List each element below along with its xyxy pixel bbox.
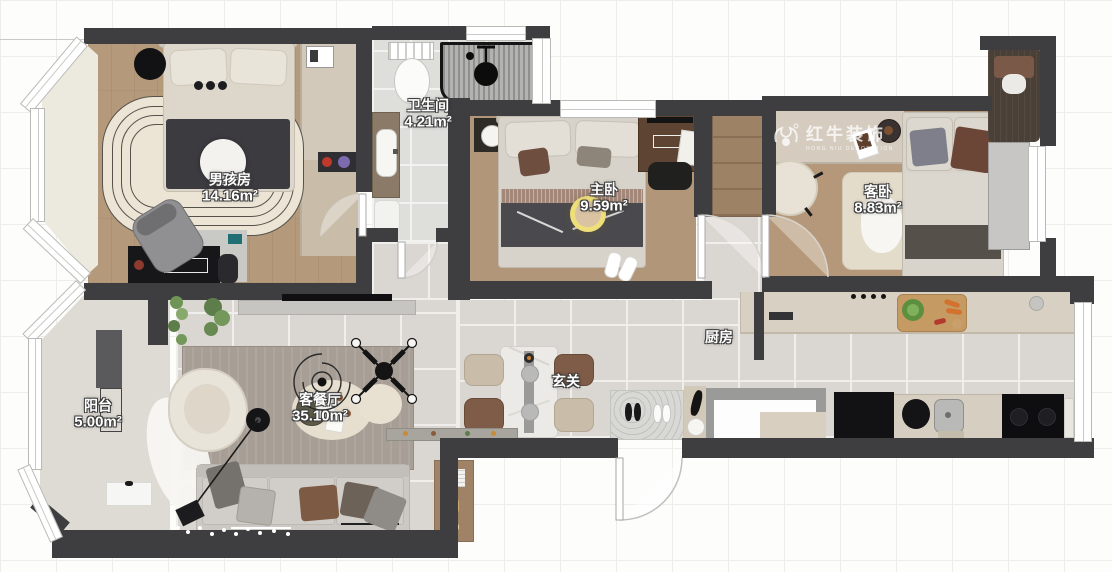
- bathroom-window: [532, 38, 551, 104]
- room-label-entry: 玄关: [552, 373, 580, 389]
- pot: [902, 399, 930, 429]
- entry-door-arc: [620, 458, 682, 520]
- room-label-kitchen: 厨房: [705, 329, 733, 345]
- black-shoes: [634, 403, 641, 421]
- balcony-cabinet: [96, 330, 122, 388]
- room-label-balcony: 阳台 5.00m²: [74, 397, 122, 430]
- room-label-living: 客餐厅 35.10m²: [292, 391, 348, 424]
- desk-chair: [648, 162, 692, 190]
- wall-segment: [694, 115, 712, 217]
- room-label-boy: 男孩房 14.16m²: [202, 171, 258, 204]
- plant: [202, 296, 234, 340]
- desk-figure: [218, 254, 238, 284]
- wall-segment: [1040, 36, 1056, 146]
- balcony-rack-top: [100, 306, 120, 330]
- burner: [1038, 408, 1056, 426]
- stove: [1002, 394, 1064, 438]
- toy-figures: [318, 152, 356, 172]
- cushion-brown: [517, 147, 550, 177]
- dining-chair-beige: [464, 354, 504, 386]
- wall-segment: [356, 28, 372, 192]
- sofa-pillow-brown: [299, 484, 340, 521]
- sofa-pillow-gray: [236, 486, 277, 527]
- pillow-bluegray: [909, 127, 949, 167]
- shower: [440, 42, 538, 103]
- brand-subtitle: HONG NIU DECORATION: [806, 146, 894, 152]
- vine-plant: [166, 296, 192, 354]
- carrot: [944, 299, 961, 309]
- shoe-nook: [684, 386, 706, 438]
- room-label-bathroom: 卫生间 4.21m²: [404, 97, 452, 130]
- bowl: [524, 353, 534, 363]
- guest-wardrobe: [988, 142, 1030, 250]
- boy-bed: [163, 42, 295, 192]
- tv-console: [238, 300, 416, 315]
- wall-segment: [754, 292, 764, 360]
- sink: [934, 399, 964, 433]
- mushroom: [952, 319, 962, 329]
- bath-vanity: [372, 112, 400, 198]
- vestibule-floor: [372, 242, 448, 300]
- cup: [134, 260, 144, 270]
- wall-segment: [682, 438, 1094, 458]
- plate: [521, 365, 539, 383]
- bay-window-left: [30, 108, 45, 222]
- flower-speckles: [176, 526, 180, 530]
- white-shoes: [662, 404, 671, 423]
- wall-segment: [440, 438, 458, 542]
- floor-lamp-head: [246, 408, 270, 432]
- dining-chair-brown: [464, 398, 504, 432]
- white-shoes: [653, 404, 662, 423]
- cushion-gray: [576, 146, 612, 169]
- kitchen-counter-black: [834, 392, 894, 438]
- shoehorn: [689, 389, 704, 416]
- burner: [1010, 408, 1028, 426]
- fridge-island: [704, 388, 826, 440]
- master-closet: [712, 115, 764, 217]
- bathroom-top-window: [466, 26, 526, 41]
- wall-segment: [356, 228, 398, 242]
- kitchen-counter-top: [740, 292, 1089, 334]
- cutting-board: [897, 294, 967, 332]
- wall-segment: [148, 290, 168, 345]
- brand-bull-icon: [772, 122, 800, 150]
- boy-stool: [134, 48, 166, 80]
- balcony-window-left: [28, 338, 42, 470]
- wall-segment: [1040, 238, 1056, 292]
- room-label-guest: 客卧 8.83m²: [854, 183, 902, 216]
- floor-plan: 红牛装饰 HONG NIU DECORATION 男孩房 14.16m² 卫生间…: [0, 0, 1112, 572]
- wall-segment: [652, 100, 764, 116]
- wall-segment: [762, 96, 992, 111]
- armchair: [168, 368, 248, 452]
- brand-name: 红牛装饰: [806, 120, 894, 145]
- carrot: [946, 308, 963, 315]
- lounge-bed: [988, 46, 1040, 142]
- chili: [934, 318, 947, 326]
- board: [760, 412, 826, 438]
- wall-segment: [448, 281, 712, 299]
- master-window: [560, 100, 656, 118]
- dimension-line: [0, 39, 84, 40]
- plate: [521, 403, 539, 421]
- boy-pillow: [229, 48, 288, 87]
- kitchen-counter-sink: [894, 394, 1002, 439]
- balcony-bench: [106, 482, 152, 506]
- guest-window: [1028, 146, 1046, 242]
- dining-table: [500, 346, 558, 438]
- tray: [769, 312, 793, 320]
- wall-segment: [52, 530, 458, 558]
- kitchen-window: [1074, 302, 1092, 442]
- dining-chair-beige: [554, 398, 594, 432]
- teal-box: [228, 234, 242, 244]
- brand-watermark: 红牛装饰 HONG NIU DECORATION: [772, 120, 894, 152]
- towel: [1064, 398, 1074, 438]
- entry-door-leaf: [616, 458, 623, 520]
- tv: [282, 294, 392, 301]
- wall-segment: [452, 438, 618, 458]
- guest-blanket: [905, 225, 1001, 259]
- room-label-master: 主卧 9.59m²: [580, 181, 628, 214]
- doormat: [610, 390, 684, 440]
- black-shoes: [625, 403, 632, 421]
- reading-nook-rug-small: [358, 384, 402, 424]
- boy-wardrobe: [300, 42, 358, 256]
- wall-segment: [84, 28, 372, 44]
